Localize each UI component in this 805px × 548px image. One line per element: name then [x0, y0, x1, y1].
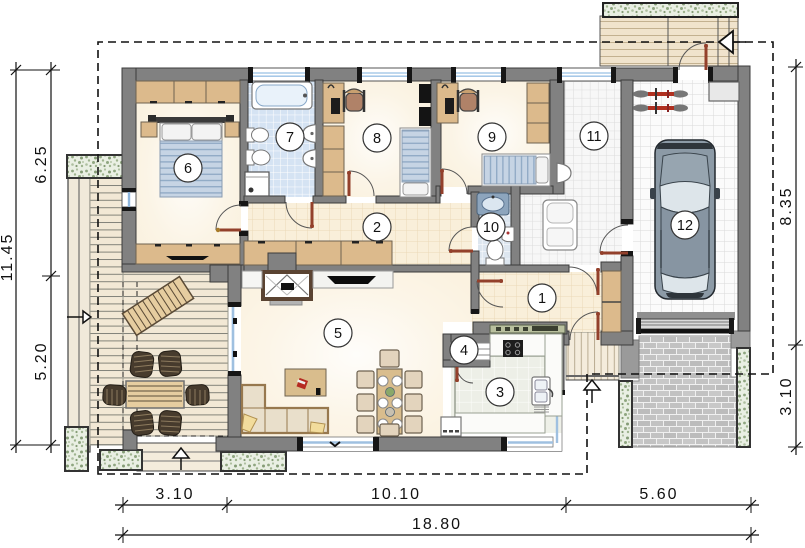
svg-text:4: 4 [460, 343, 468, 359]
svg-text:1: 1 [538, 291, 546, 307]
svg-text:11.45: 11.45 [0, 233, 16, 282]
svg-text:7: 7 [286, 130, 294, 146]
svg-text:12: 12 [677, 218, 693, 234]
svg-text:8: 8 [373, 131, 381, 147]
svg-text:6.25: 6.25 [33, 144, 50, 183]
svg-text:11: 11 [586, 129, 601, 145]
svg-text:8.35: 8.35 [778, 186, 795, 225]
svg-text:2: 2 [373, 220, 381, 236]
svg-text:5.20: 5.20 [33, 341, 50, 380]
svg-text:5.60: 5.60 [639, 486, 678, 503]
svg-text:10: 10 [483, 220, 499, 236]
svg-text:9: 9 [488, 130, 496, 146]
svg-text:10.10: 10.10 [371, 486, 421, 503]
svg-text:3.10: 3.10 [155, 486, 194, 503]
svg-text:3: 3 [496, 385, 504, 401]
svg-text:5: 5 [334, 326, 342, 342]
svg-text:3.10: 3.10 [778, 376, 795, 415]
svg-text:18.80: 18.80 [412, 516, 462, 533]
svg-text:6: 6 [184, 161, 192, 177]
